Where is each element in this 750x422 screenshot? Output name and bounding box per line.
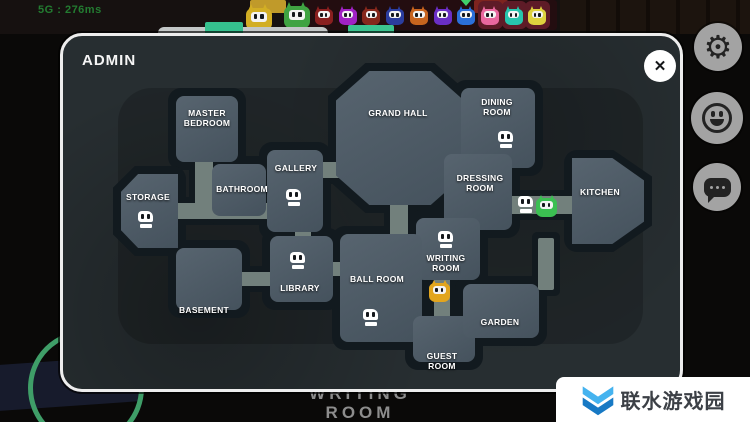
avatar-1-alive-horn [350,6,354,11]
game-screen: 5G : 276ms WRITING ROOM ADMIN ✕ MASTER B… [0,0,750,422]
avatar-4-alive-eye [415,13,418,17]
close-icon: ✕ [654,59,667,74]
avatar-2-alive-horn [364,6,368,11]
avatar-3-alive-horn [388,6,392,11]
avatar-5-alive-horn [445,6,449,11]
avatar-3-alive-eye [391,13,394,17]
avatar-3-alive-eye [396,13,399,17]
avatar-2-alive-horn [374,6,378,11]
watermark: 联水游戏园 [556,377,750,422]
avatar-9-dead-eye [538,13,541,17]
avatar-1-alive-face [342,11,354,18]
admin-panel: ADMIN ✕ [60,33,683,392]
emotes-button[interactable] [691,92,743,144]
avatar-1-alive-horn [340,6,344,11]
gear-icon: ⚙ [704,31,733,63]
watermark-logo-icon [581,383,615,417]
avatar-2-alive-face [366,11,378,18]
avatar-8-dead-face [508,11,520,18]
avatar-7-dead-eye [486,13,489,17]
avatar-7-dead-eye [491,13,494,17]
avatar-9-dead-eye [534,13,537,17]
avatar-8-dead-horn [516,6,520,11]
avatar-8-dead-horn [506,6,510,11]
avatar-1-alive-eye [349,13,352,17]
avatar-5-alive-eye [439,13,442,17]
avatar-6-current-eye [467,13,470,17]
avatar-3-alive [386,6,404,25]
avatar-9-dead-horn [530,6,534,11]
avatar-0-alive-face [318,11,330,18]
smiley-icon [702,103,732,133]
avatar-4-alive-horn [411,6,415,11]
panel-title: ADMIN [82,52,136,69]
avatar-0-alive-horn [316,6,320,11]
current-player-arrow-icon [460,0,472,6]
avatar-7-dead-horn [492,6,496,11]
avatar-9-dead [528,6,546,25]
avatar-4-alive-eye [420,13,423,17]
watermark-text: 联水游戏园 [621,385,726,414]
avatar-8-dead-eye [515,13,518,17]
avatar-2-alive-eye [368,13,371,17]
avatar-7-dead-horn [482,6,486,11]
avatar-5-alive-horn [435,6,439,11]
avatar-6-current-face [460,11,472,18]
close-button[interactable]: ✕ [644,50,676,82]
avatar-8-dead [505,6,523,25]
avatar-1-alive-eye [344,13,347,17]
avatar-5-alive [434,6,452,25]
avatar-7-dead [481,6,499,25]
avatar-2-alive-eye [372,13,375,17]
avatar-4-alive-face [413,11,425,18]
avatar-4-alive [410,6,428,25]
avatar-0-alive-horn [326,6,330,11]
avatar-9-dead-horn [539,6,543,11]
avatar-9-dead-face [532,11,544,18]
avatar-5-alive-eye [443,13,446,17]
avatar-0-alive-eye [320,13,323,17]
avatar-1-alive [339,6,357,25]
chat-bubble-icon [704,178,731,197]
avatar-6-current-horn [459,6,463,11]
avatar-7-dead-face [484,11,496,18]
avatar-3-alive-face [389,11,401,18]
avatar-0-alive [315,6,333,25]
avatar-8-dead-eye [510,13,513,17]
avatar-5-alive-face [437,11,449,18]
settings-button[interactable]: ⚙ [694,23,742,71]
avatar-4-alive-horn [421,6,425,11]
avatar-6-current-horn [468,6,472,11]
chat-button[interactable] [693,163,741,211]
avatar-6-current-eye [462,13,465,17]
avatar-2-alive [362,6,380,25]
avatar-0-alive-eye [325,13,328,17]
avatar-6-current [457,6,475,25]
avatar-3-alive-horn [397,6,401,11]
